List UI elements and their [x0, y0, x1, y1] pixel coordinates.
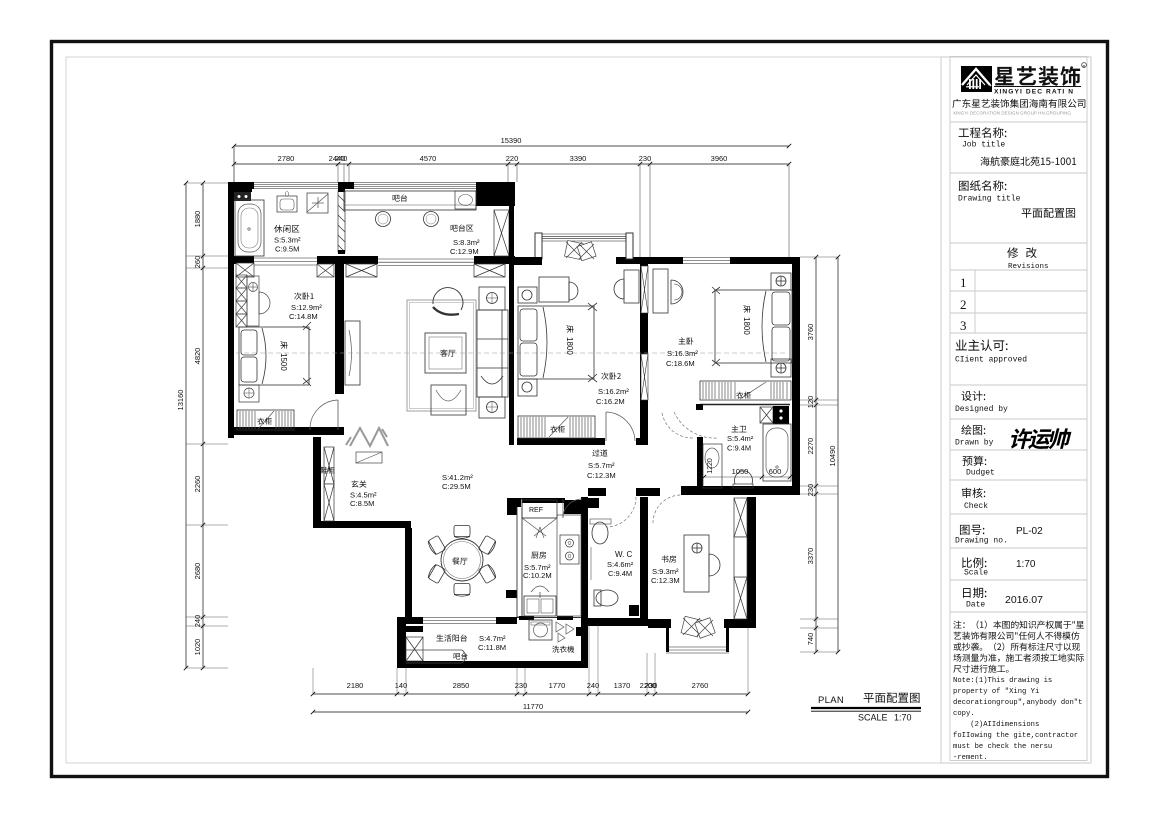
svg-text:C:12.3M: C:12.3M — [587, 471, 616, 480]
svg-text:S:5.4m²: S:5.4m² — [727, 434, 754, 443]
svg-text:property of "Xing Yi: property of "Xing Yi — [953, 688, 1039, 696]
svg-text:120: 120 — [806, 396, 815, 409]
svg-text:1880: 1880 — [193, 211, 202, 228]
svg-text:C:11.8M: C:11.8M — [478, 643, 506, 652]
svg-text:Dudget: Dudget — [966, 469, 995, 478]
svg-text:REF: REF — [529, 507, 543, 514]
svg-text:3: 3 — [960, 318, 967, 333]
svg-text:1:70: 1:70 — [1016, 559, 1036, 570]
svg-text:SCALE: SCALE — [858, 713, 888, 723]
svg-text:240: 240 — [335, 154, 348, 163]
svg-text:220: 220 — [506, 154, 519, 163]
svg-text:XINGYI DECORATION DESIGN GROUP: XINGYI DECORATION DESIGN GROUP HN.GROUPI… — [953, 111, 1071, 116]
svg-text:2180: 2180 — [347, 681, 364, 690]
svg-text:C:14.8M: C:14.8M — [289, 312, 318, 321]
svg-text:CIient approved: CIient approved — [955, 356, 1027, 365]
svg-text:2780: 2780 — [278, 154, 295, 163]
svg-text:230: 230 — [645, 681, 658, 690]
svg-text:C:12.9M: C:12.9M — [450, 247, 479, 256]
svg-text:Designed by: Designed by — [955, 405, 1008, 414]
svg-text:S:5.7m²: S:5.7m² — [588, 461, 615, 470]
svg-text:Note:(1)This drawing is: Note:(1)This drawing is — [953, 677, 1052, 685]
svg-text:R: R — [1083, 63, 1086, 68]
svg-text:C:9.4M: C:9.4M — [727, 444, 751, 453]
svg-text:1800: 1800 — [742, 317, 751, 335]
svg-text:1050: 1050 — [732, 467, 749, 476]
svg-text:C:29.5M: C:29.5M — [442, 482, 471, 491]
svg-text:S:4.6m²: S:4.6m² — [607, 560, 634, 569]
svg-text:W. C: W. C — [615, 550, 633, 559]
svg-text:1020: 1020 — [193, 639, 202, 656]
svg-text:1: 1 — [960, 275, 967, 290]
svg-text:740: 740 — [806, 633, 815, 646]
svg-text:S:9.3m²: S:9.3m² — [652, 567, 679, 576]
svg-text:230: 230 — [806, 484, 815, 497]
svg-text:S:41.2m²: S:41.2m² — [442, 473, 473, 482]
svg-text:S:4.7m²: S:4.7m² — [479, 634, 506, 643]
svg-text:1800: 1800 — [565, 337, 574, 355]
svg-text:1770: 1770 — [549, 681, 566, 690]
svg-text:140: 140 — [395, 681, 408, 690]
svg-text:13160: 13160 — [176, 390, 185, 411]
svg-text:1220: 1220 — [707, 458, 714, 474]
svg-text:S:16.2m²: S:16.2m² — [598, 387, 629, 396]
svg-text:3760: 3760 — [806, 324, 815, 341]
svg-text:S:16.3m²: S:16.3m² — [667, 349, 698, 358]
svg-text:C:16.2M: C:16.2M — [596, 397, 625, 406]
svg-text:XINGYI DEC RATI N: XINGYI DEC RATI N — [994, 89, 1074, 96]
svg-text:1500: 1500 — [279, 353, 288, 371]
svg-text:S:8.3m²: S:8.3m² — [453, 238, 480, 247]
svg-text:must be check the nersu: must be check the nersu — [953, 743, 1052, 751]
svg-text:15390: 15390 — [501, 136, 522, 145]
svg-text:Scale: Scale — [964, 569, 988, 578]
svg-text:C:8.5M: C:8.5M — [350, 499, 374, 508]
svg-text:Drawn by: Drawn by — [955, 439, 994, 448]
svg-text:-rement.: -rement. — [953, 754, 988, 762]
svg-text:2760: 2760 — [692, 681, 709, 690]
svg-text:PL-02: PL-02 — [1016, 526, 1043, 537]
svg-text:Job title: Job title — [962, 141, 1005, 150]
svg-text:Revisions: Revisions — [1008, 263, 1049, 271]
svg-text:4570: 4570 — [420, 154, 437, 163]
svg-text:11770: 11770 — [523, 702, 543, 711]
svg-text:3370: 3370 — [806, 548, 815, 565]
svg-text:2850: 2850 — [453, 681, 470, 690]
svg-text:2260: 2260 — [193, 476, 202, 493]
svg-text:600: 600 — [769, 467, 782, 476]
svg-text:4820: 4820 — [193, 348, 202, 365]
svg-text:S:12.9m²: S:12.9m² — [291, 303, 322, 312]
svg-text:Check: Check — [964, 502, 988, 511]
svg-text:C:18.6M: C:18.6M — [666, 359, 695, 368]
svg-text:230: 230 — [515, 681, 528, 690]
svg-text:1:70: 1:70 — [894, 713, 912, 723]
svg-text:3390: 3390 — [570, 154, 587, 163]
svg-text:Date: Date — [966, 601, 985, 610]
svg-text:240: 240 — [587, 681, 600, 690]
svg-text:(2)AIIdimensions: (2)AIIdimensions — [953, 721, 1039, 729]
svg-text:2: 2 — [960, 297, 967, 312]
svg-text:decorationgroup",anybody don"t: decorationgroup",anybody don"t — [953, 699, 1082, 707]
svg-text:230: 230 — [639, 154, 652, 163]
svg-text:Drawing no.: Drawing no. — [955, 537, 1008, 546]
svg-text:2680: 2680 — [193, 563, 202, 580]
svg-text:3960: 3960 — [711, 154, 728, 163]
svg-text:copy.: copy. — [953, 710, 975, 718]
svg-text:2016.07: 2016.07 — [1005, 594, 1043, 606]
svg-text:C:10.2M: C:10.2M — [523, 571, 552, 580]
svg-text:S:5.3m²: S:5.3m² — [274, 236, 301, 245]
svg-text:1370: 1370 — [614, 681, 631, 690]
svg-text:C:9.4M: C:9.4M — [608, 569, 632, 578]
svg-text:10490: 10490 — [828, 446, 837, 467]
svg-text:260: 260 — [193, 256, 202, 269]
svg-text:PLAN: PLAN — [818, 695, 844, 706]
svg-text:240: 240 — [193, 615, 202, 628]
svg-text:C:12.3M: C:12.3M — [651, 576, 680, 585]
svg-text:C:9.5M: C:9.5M — [275, 245, 299, 254]
svg-text:2270: 2270 — [806, 438, 815, 455]
svg-text:foIIowing the gite,contractor: foIIowing the gite,contractor — [953, 732, 1078, 740]
svg-text:Drawing title: Drawing title — [958, 195, 1021, 204]
